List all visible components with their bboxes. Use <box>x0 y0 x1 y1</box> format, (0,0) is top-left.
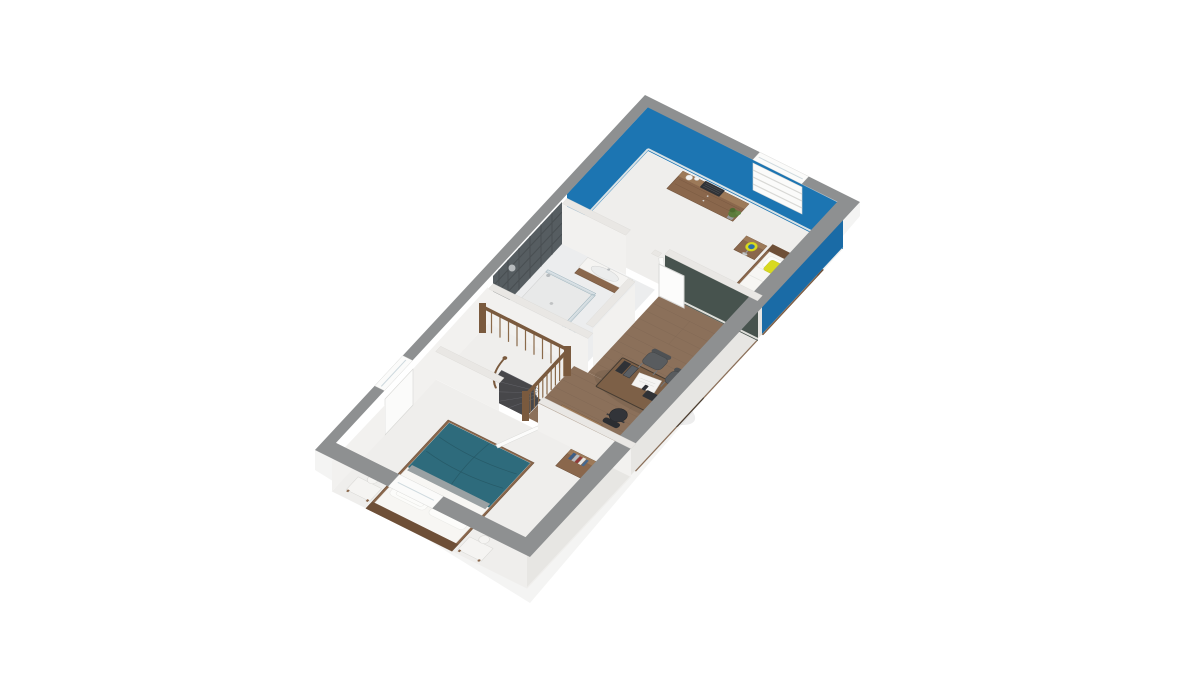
newel-post <box>479 303 486 333</box>
newel-post <box>522 391 529 421</box>
newel-post <box>564 346 571 376</box>
floorplan-render <box>0 0 1200 675</box>
shower-arm <box>509 265 516 272</box>
floorplan-canvas <box>0 0 1200 675</box>
